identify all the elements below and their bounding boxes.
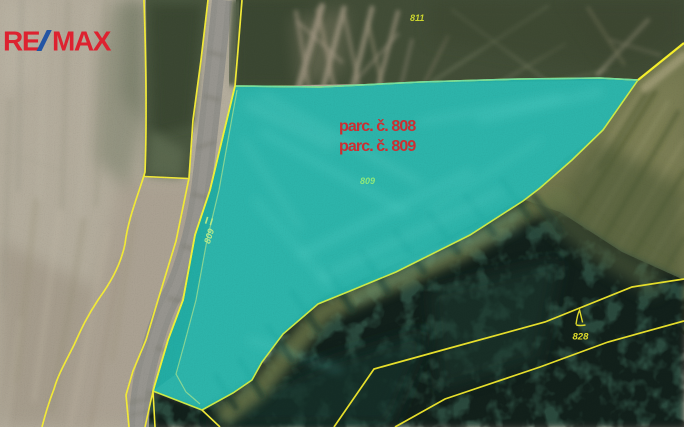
svg-text:809: 809	[360, 176, 375, 186]
svg-text:RE: RE	[3, 26, 40, 57]
svg-text:parc. č. 809: parc. č. 809	[339, 138, 416, 155]
svg-text:811: 811	[410, 13, 424, 23]
svg-text:828: 828	[573, 332, 590, 343]
svg-text:MAX: MAX	[52, 26, 112, 57]
svg-text:parc. č. 808: parc. č. 808	[339, 118, 416, 135]
